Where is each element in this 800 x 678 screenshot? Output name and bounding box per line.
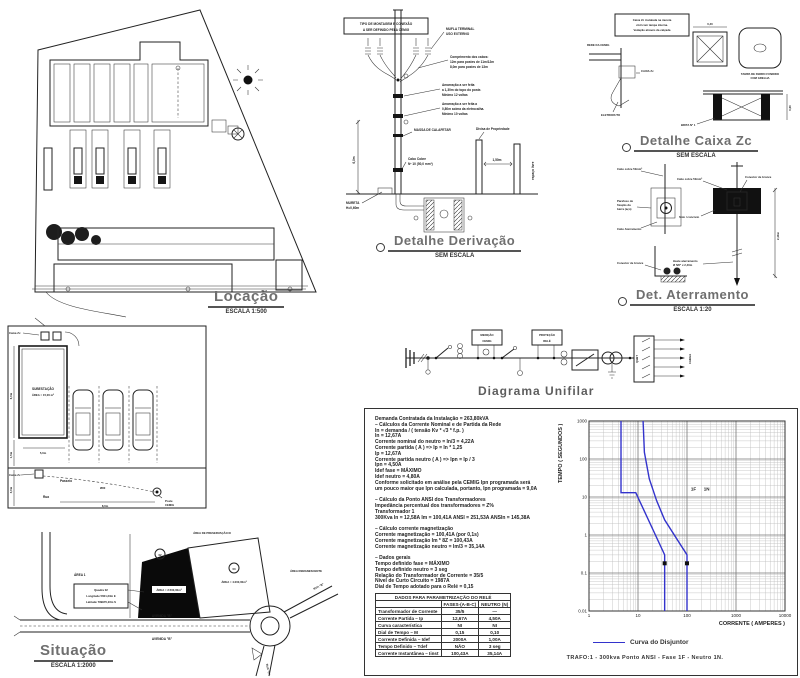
title-circle-icon xyxy=(618,297,627,306)
coordinate-callout: Quadra 02 Longitude 5601,23m E Latitude … xyxy=(74,584,144,610)
x-tick-label: 10 xyxy=(635,613,641,618)
section-title: Detalhe Caixa Zc xyxy=(634,134,758,152)
trees xyxy=(46,224,101,245)
table-cell: 2000A xyxy=(441,636,479,643)
calc-report: Demanda Contratada da Instalação = 263,8… xyxy=(375,417,563,591)
report-line: um pouco maior que Ipn calculada, portan… xyxy=(375,487,563,493)
table-cell: 1,00A xyxy=(479,636,511,643)
caixa-label: CAIXA Zc xyxy=(641,69,654,73)
x-tick-label: 100 xyxy=(683,613,691,618)
col-header: FASES-(A-B-C) xyxy=(441,601,479,608)
parafuso-3: barra (aço) xyxy=(617,207,632,211)
dim-150: 1,50m xyxy=(492,158,501,162)
amar2-1: Amarração a ser feita a xyxy=(442,102,477,106)
note-line-2: A SER DEFINIDO PELA CEMIG xyxy=(363,28,410,32)
car-icon xyxy=(99,386,123,463)
dim-6m: 6,0m xyxy=(352,156,356,163)
section-scale: ESCALA 1:500 xyxy=(225,309,266,315)
amar1-1: Amarração a ser feita xyxy=(442,83,475,87)
y-axis-label: TEMPO ( SEGUNDOS ) xyxy=(558,424,564,483)
mureta-1: MURETA xyxy=(346,201,360,205)
table-row: Corrente Instantânea – Iinst100,43A35,14… xyxy=(376,650,511,657)
compr-2: 12m para postes de 11m/12m xyxy=(450,60,494,64)
x-tick-label: 10000 xyxy=(779,613,792,618)
cables-insulators xyxy=(365,38,431,82)
amar2-2: 0,80m acima da eletrocalha. xyxy=(442,107,484,111)
eletroduto-label: ELETRODUTO xyxy=(601,113,621,117)
legend-line-icon xyxy=(593,642,625,643)
massa-label: MASSA DE CALAFETAR xyxy=(414,128,452,132)
table-cell: Corrente Definida – Idef xyxy=(376,636,442,643)
y-tick-label: 0.1 xyxy=(581,571,588,576)
wall-section: REDE DA CEMIG CAIXA Zc ELETRODUTO xyxy=(587,43,654,117)
cars xyxy=(69,386,157,463)
table-cell: Dial de Tempo – M xyxy=(376,629,442,636)
dim-8m: 8,0m xyxy=(102,504,109,508)
dim-5m: 5,0m xyxy=(40,451,47,455)
sun-icon xyxy=(233,65,263,95)
y-tick-label: 10 xyxy=(582,495,588,500)
amar1-2: a 1,30m do topo do poste. xyxy=(442,88,481,92)
callout-line-3: Latitude 789970,23m S xyxy=(86,600,116,604)
rua-b-label: RUA "B" xyxy=(313,582,326,591)
cabo-2: Nº 10 (50,0 mm²) xyxy=(408,162,433,166)
grate-detail: TAMPA DE FERRO FUNDIDO COM GRELHA xyxy=(739,28,781,80)
sidewalk-street: Caixa Zc Ø80 Passeio Rua Poste CEMIG xyxy=(8,468,206,507)
table-cell: 3 seg xyxy=(479,643,511,650)
x-axis-label: CORRENTE ( AMPERES ) xyxy=(719,621,785,627)
drawing-sheet: Locação ESCALA 1:500 SUBESTAÇÃO ÁREA = 1… xyxy=(0,0,800,678)
pole-dimension: 6,0m xyxy=(352,120,360,194)
lots: ÁREA = 2.500,00m² ÁREA = 4.000,00m² 02 0… xyxy=(130,534,270,618)
section-title: Detalhe Derivação xyxy=(388,234,521,252)
chart-legend: Curva do Disjuntor xyxy=(593,639,689,646)
table-row: Corrente Definida – Idef2000A1,00A xyxy=(376,636,511,643)
table-cell: 35/5 xyxy=(441,608,479,615)
col-header: NEUTRO (N) xyxy=(479,601,511,608)
poste-label-2: CEMIG xyxy=(165,503,174,507)
mufla-2: USO EXTERNO xyxy=(446,32,470,36)
callout-line-2: Longitude 5601,23m E xyxy=(86,594,116,598)
note-2: civil com tampa interna. xyxy=(636,23,668,27)
ground-and-duct xyxy=(346,188,538,232)
y-tick-label: 100 xyxy=(579,457,587,462)
box1-2: CEMIG xyxy=(482,339,491,343)
metering-box: MEDIÇÃO CEMIG xyxy=(472,330,502,359)
table-cell: 4,50A xyxy=(479,615,511,622)
carga-label: CARGA xyxy=(688,354,692,364)
section-scale: ESCALA 1:2000 xyxy=(51,663,96,669)
col-header xyxy=(376,601,442,608)
table-cell: 100,43A xyxy=(441,650,479,657)
diagrama-unifilar: MEDIÇÃO CEMIG PROTEÇÃO RELÉ xyxy=(398,328,698,386)
dim-3m: 3,0m xyxy=(9,486,13,493)
note-box: Caixa Zc instalada na mureta civil com t… xyxy=(615,14,689,36)
caixa-zc-title: Detalhe Caixa Zc SEM ESCALA xyxy=(622,134,758,159)
box-section-detail: BRITA Nº 1 0,60 xyxy=(681,91,792,127)
cabo1-label: Cabo cobre 50mm² xyxy=(617,167,642,171)
car-icon xyxy=(129,386,157,463)
detalhe-derivacao: TIPO DE MONTAGEM E CONEXÃO A SER DEFINID… xyxy=(338,2,543,234)
room-label-2: ÁREA = 15,00 m² xyxy=(32,392,54,397)
note-3: Vedação através da calçada xyxy=(633,28,670,32)
situacao-title: Situação ESCALA 1:2000 xyxy=(34,644,113,669)
dim-240: 2,40m xyxy=(776,232,780,240)
duct-label: Ø80 xyxy=(100,486,106,490)
compr-3: 8,0m para postes de 13m xyxy=(450,65,488,69)
caixa-zc-label-2: Caixa Zc xyxy=(9,473,21,477)
table-cell: Corrente Partida – Ip xyxy=(376,615,442,622)
table-cell: Transformador de Corrente xyxy=(376,608,442,615)
table-cell: Tempo Definido – Tdef xyxy=(376,643,442,650)
property-walls: 1,50m Divisa de Propriedade espaço livre xyxy=(476,127,535,194)
loading-docks xyxy=(70,130,170,188)
situacao-map: ÁREA = 2.500,00m² ÁREA = 4.000,00m² 02 0… xyxy=(12,528,344,646)
table-row: Transformador de Corrente35/5— xyxy=(376,608,511,615)
table-cell: 12,67A xyxy=(441,615,479,622)
lot-marker-1: 02 xyxy=(158,553,162,557)
cabo-1: Cabo Cobre xyxy=(408,157,426,161)
curve-curva-neutro xyxy=(621,421,665,611)
y-tick-label: 1000 xyxy=(577,419,588,424)
transformer-icon xyxy=(602,352,622,378)
box-plan-detail: 0,40 xyxy=(693,22,727,66)
circuit-breaker xyxy=(572,350,598,370)
section-title: Situação xyxy=(34,644,113,662)
brita-label: BRITA Nº 1 xyxy=(681,123,696,127)
curve-annotation: 1N xyxy=(704,486,710,491)
haste-2: Ø 5/8" x 2,40m xyxy=(673,263,693,267)
conector2-label: Conector de bronze xyxy=(745,175,772,179)
amar2-3: Mínimo 10 voltas xyxy=(442,112,468,116)
caixa-zc-label: Caixa Zc xyxy=(9,331,21,335)
clamp-detail: Cabo cobre 50mm² Parafuso de fixação da … xyxy=(617,164,681,234)
section-title: Det. Aterramento xyxy=(630,288,755,306)
table-cell: Curva característica xyxy=(376,622,442,629)
stair-tower xyxy=(44,148,52,190)
rua-c-label: RUA "C" xyxy=(265,663,271,676)
leader-to-detail xyxy=(46,292,126,317)
section-scale: ESCALA 1:20 xyxy=(673,307,711,313)
espaco-label: espaço livre xyxy=(531,161,535,180)
switch-2 xyxy=(501,346,523,375)
table-row: Dial de Tempo – M0,150,10 xyxy=(376,629,511,636)
remanescente-label: ÁREA REMANESCENTE xyxy=(290,568,322,573)
y-tick-label: 1 xyxy=(584,533,587,538)
fan-unit xyxy=(212,120,244,140)
building-outline xyxy=(50,42,208,126)
x-tick-label: 1000 xyxy=(731,613,742,618)
mufla-1: MUFLA TERMINAL xyxy=(446,27,474,31)
rua-label: Rua xyxy=(43,495,49,499)
parking-rows xyxy=(54,228,302,292)
table-row: Corrente Partida – Ip12,67A4,50A xyxy=(376,615,511,622)
table-cell: 35,14A xyxy=(479,650,511,657)
tampa-2: COM GRELHA xyxy=(750,76,769,80)
aterramento-title: Det. Aterramento ESCALA 1:20 xyxy=(618,288,755,313)
qgbt-label: QGBT xyxy=(635,355,639,363)
title-circle-icon xyxy=(622,143,631,152)
box1-1: MEDIÇÃO xyxy=(480,332,494,337)
detalhe-caixa-zc: Caixa Zc instalada na mureta civil com t… xyxy=(585,8,800,136)
dim-15m: 1,5m xyxy=(9,451,13,458)
section-scale: SEM ESCALA xyxy=(435,253,474,259)
table-cell: NI xyxy=(479,622,511,629)
derivacao-title: Detalhe Derivação SEM ESCALA xyxy=(376,234,521,259)
table-cell: 0,15 xyxy=(441,629,479,636)
substation-room: SUBESTAÇÃO ÁREA = 15,00 m² xyxy=(19,346,67,438)
conector-label: Conector de bronze xyxy=(617,261,644,265)
lot-area-label: ÁREA = 2.500,00m² xyxy=(156,587,181,592)
table-cell: — xyxy=(479,608,511,615)
compr-1: Comprimento dos cabos: xyxy=(450,55,488,59)
preservacao-label: ÁREA DE PRESERVAÇÃO III xyxy=(193,530,231,535)
site-plan-locacao xyxy=(8,2,338,317)
divisa-label: Divisa de Propriedade xyxy=(476,127,510,131)
locacao-title: Locação ESCALA 1:500 xyxy=(208,290,284,315)
table-row: Tempo Definido – TdefNÃO3 seg xyxy=(376,643,511,650)
lot2-area-label: ÁREA = 4.000,00m² xyxy=(221,579,246,584)
rod-detail: Cabo cobre 50mm² Conector de bronze Solo… xyxy=(673,162,780,286)
solo-label: Solo / concreto xyxy=(679,215,699,219)
curve-marker xyxy=(663,561,667,565)
note-line-1: TIPO DE MONTAGEM E CONEXÃO xyxy=(360,21,413,26)
area1-label: ÁREA 1 xyxy=(74,572,86,577)
x-tick-label: 1 xyxy=(588,613,591,618)
lot-marker-2: 03 xyxy=(232,567,236,571)
det-aterramento: Cabo cobre 50mm² Parafuso de fixação da … xyxy=(615,158,800,290)
callout-line-1: Quadra 02 xyxy=(94,588,108,592)
avenida-label-bottom: AVENIDA "B" xyxy=(152,637,173,641)
avenida-label-top: AVENIDA "B" xyxy=(152,614,173,618)
pole xyxy=(393,10,408,194)
rele-table: DADOS PARA PARAMETRIZAÇÃO DO RELÉ FASES-… xyxy=(375,593,511,657)
mureta-2: H=0,60m xyxy=(346,206,359,210)
y-tick-label: 0.01 xyxy=(578,609,587,614)
note-1: Caixa Zc instalada na mureta xyxy=(633,18,672,22)
unifilar-title: Diagrama Unifilar xyxy=(478,384,594,398)
table-cell: 0,10 xyxy=(479,629,511,636)
curve-marker xyxy=(685,561,689,565)
entry-boxes: Caixa Zc xyxy=(9,331,79,346)
qgbt-panel: QGBT CARGA xyxy=(629,336,692,382)
passeio-label: Passeio xyxy=(60,479,72,483)
box2-2: RELÉ xyxy=(543,338,551,343)
cabo-aterr-label: Cabo Aterramento xyxy=(617,227,642,231)
table-cell: NI xyxy=(441,622,479,629)
amar1-3: Mínimo 12 voltas xyxy=(442,93,468,97)
dim-040: 0,40 xyxy=(707,22,713,26)
curve-annotation: 1F xyxy=(691,486,697,491)
rede-label: REDE DA CEMIG xyxy=(587,43,609,47)
substation-detail-plan: SUBESTAÇÃO ÁREA = 15,00 m² Caixa Zc 6,0m… xyxy=(5,318,233,518)
box2-1: PROTEÇÃO xyxy=(539,332,556,337)
dim-060: 0,60 xyxy=(788,105,792,111)
legend-label: Curva do Disjuntor xyxy=(630,639,689,646)
calc-panel: Demanda Contratada da Instalação = 263,8… xyxy=(364,408,798,676)
note-box: TIPO DE MONTAGEM E CONEXÃO A SER DEFINID… xyxy=(344,18,428,34)
chart-footer: TRAFO:1 - 300kva Ponto ANSI - Fase 1F - … xyxy=(515,655,775,661)
incoming-bus xyxy=(406,348,430,374)
cabo2-label: Cabo cobre 50mm² xyxy=(677,177,702,181)
section-title: Locação xyxy=(208,290,284,308)
room-label-1: SUBESTAÇÃO xyxy=(32,386,55,391)
subject-lot xyxy=(138,548,200,618)
protection-box: PROTEÇÃO RELÉ xyxy=(532,330,567,365)
table-row: Curva característicaNINI xyxy=(376,622,511,629)
car-icon xyxy=(69,386,93,463)
annotations: MUFLA TERMINAL USO EXTERNO Comprimento d… xyxy=(346,27,494,210)
title-circle-icon xyxy=(376,243,385,252)
report-line: Dial de Tempo adotado para o Relé = 0,15 xyxy=(375,585,563,591)
table-cell: NÃO xyxy=(441,643,479,650)
dim-6m: 6,0m xyxy=(9,392,13,399)
disconnect-switch xyxy=(435,345,452,359)
table-cell: Corrente Instantânea – Iinst xyxy=(376,650,442,657)
pt-coils xyxy=(458,344,463,359)
table-title: DADOS PARA PARAMETRIZAÇÃO DO RELÉ xyxy=(376,594,511,601)
